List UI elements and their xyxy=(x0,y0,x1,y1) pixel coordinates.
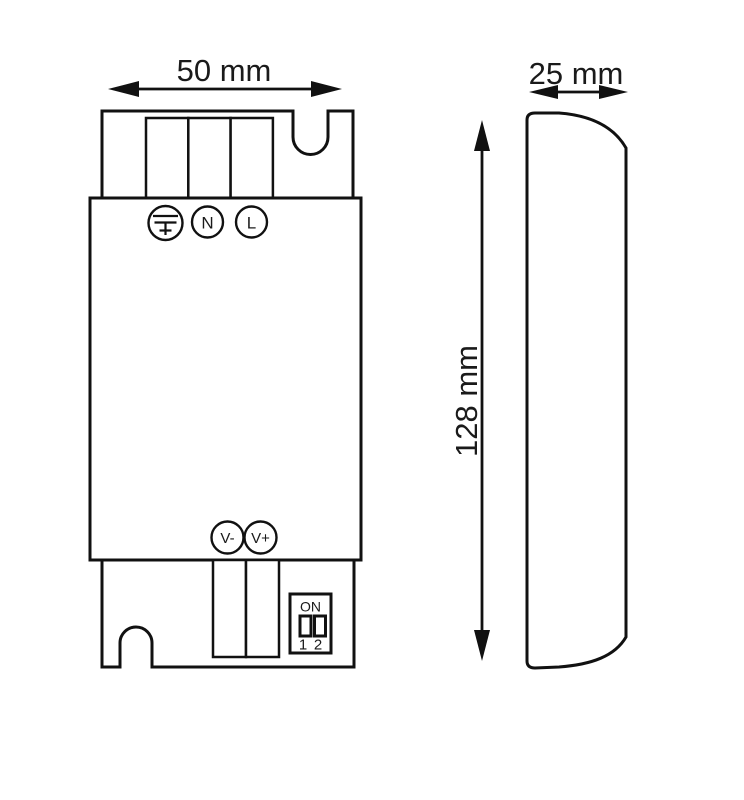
output-positive-circle: V+ xyxy=(245,522,277,554)
output-negative-label: V- xyxy=(220,530,234,547)
output-positive-label: V+ xyxy=(251,530,270,547)
neutral-terminal-label: N xyxy=(201,214,213,233)
line-terminal-circle: L xyxy=(236,207,267,238)
height-dimension-label: 128 mm xyxy=(449,345,484,457)
device-body xyxy=(90,198,361,560)
side-profile xyxy=(527,113,626,668)
line-terminal-label: L xyxy=(247,214,256,233)
side-view: 25 mm 128 mm xyxy=(449,56,628,668)
neutral-terminal-circle: N xyxy=(192,207,223,238)
dip-switch-position-1-label: 1 xyxy=(299,637,307,654)
dip-switch-lever-2 xyxy=(315,616,326,636)
depth-dimension-label: 25 mm xyxy=(529,56,624,91)
dip-switch-on-label: ON xyxy=(300,599,321,615)
dip-switch: ON 1 2 xyxy=(290,594,331,654)
input-terminal-block xyxy=(146,118,273,198)
dimension-drawing-canvas: 50 mm xyxy=(0,0,744,800)
dip-switch-position-2-label: 2 xyxy=(314,637,322,654)
dip-switch-lever-1 xyxy=(300,616,311,636)
width-dimension-label: 50 mm xyxy=(177,53,272,88)
output-terminal-block xyxy=(213,560,279,657)
output-negative-circle: V- xyxy=(212,522,244,554)
front-view: 50 mm xyxy=(90,53,361,667)
technical-drawing: 50 mm xyxy=(0,0,744,800)
earth-terminal-circle xyxy=(149,206,183,240)
